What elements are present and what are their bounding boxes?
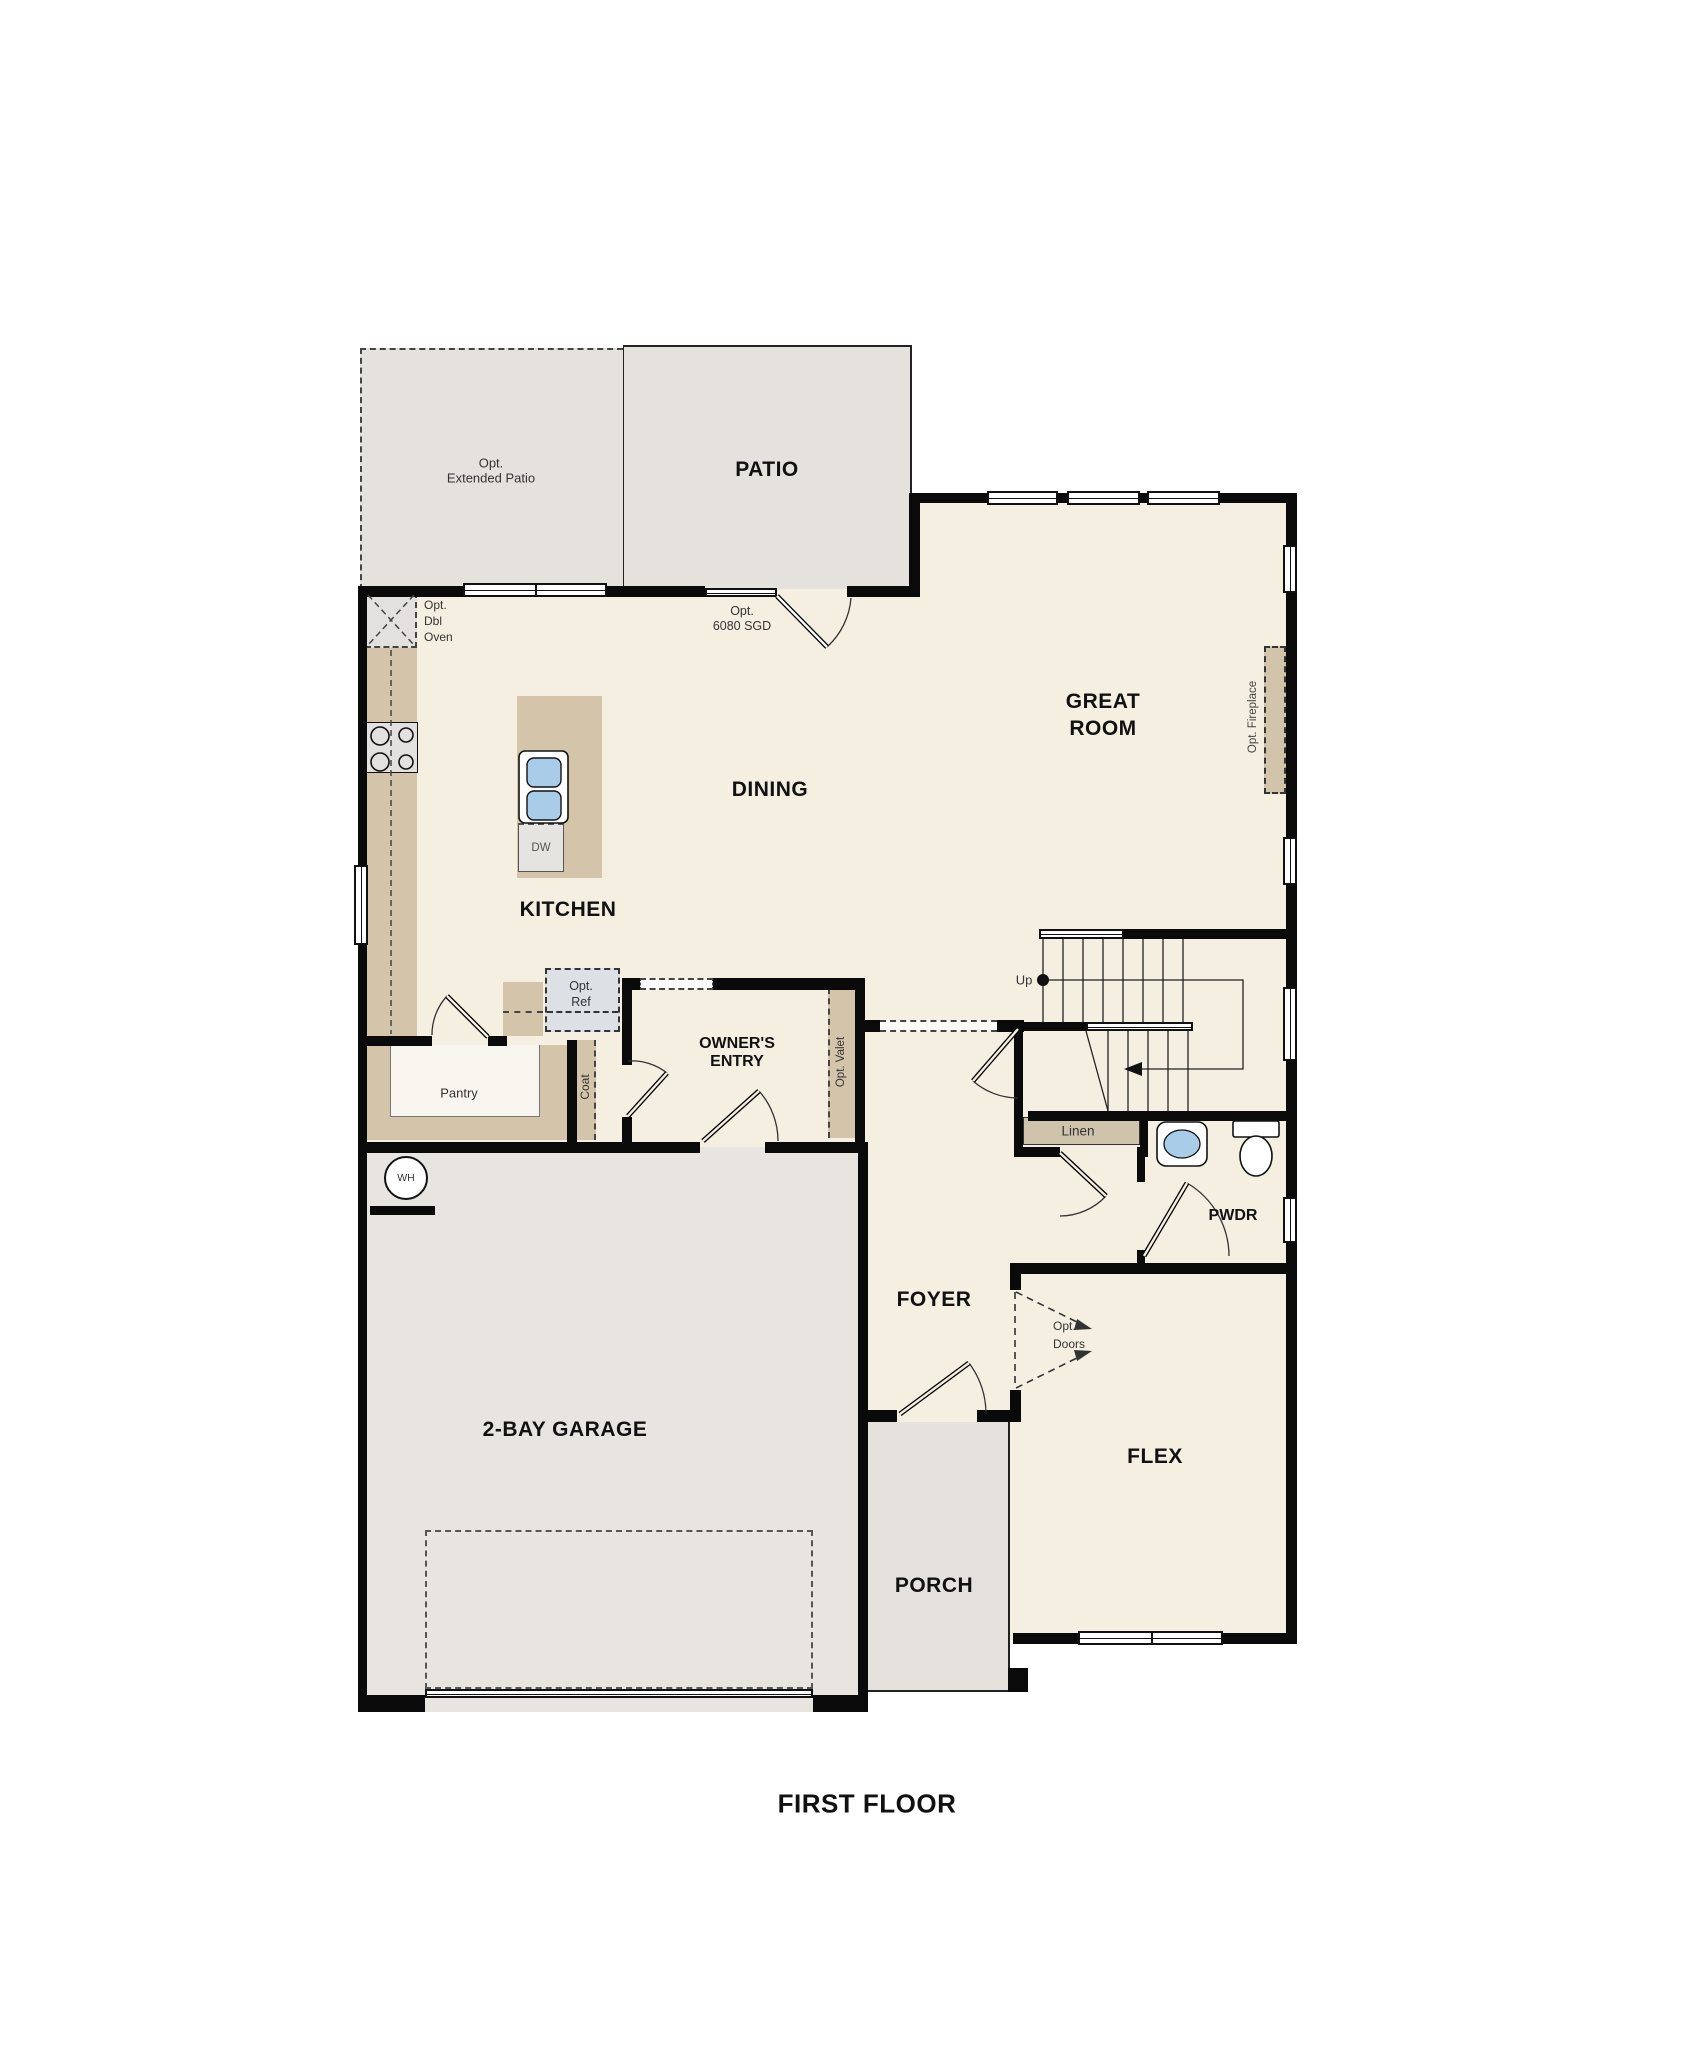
coat-label: Coat [578, 1074, 592, 1099]
cooktop-burners [371, 727, 413, 771]
stair-arrow [1124, 1062, 1142, 1076]
owners-entry-label-line2: ENTRY [710, 1053, 764, 1071]
pantry-door [432, 996, 488, 1037]
fireplace-label: Opt. Fireplace [1247, 681, 1259, 753]
pwdr-label: PWDR [1209, 1207, 1258, 1225]
owners-entry-label-line1: OWNER'S [699, 1035, 775, 1053]
dishwasher-label: DW [531, 842, 550, 854]
plan-title: FIRST FLOOR [778, 1789, 957, 1820]
porch-label: PORCH [895, 1574, 973, 1598]
great-room-label-line1: GREAT [1066, 690, 1140, 714]
staircase [1043, 939, 1243, 1111]
fridge-label-line1: Opt. [569, 979, 593, 993]
flex-label: FLEX [1127, 1445, 1183, 1469]
oven-hatch [368, 595, 414, 1034]
ext-patio-label-line2: Extended Patio [447, 471, 535, 486]
valet-label: Opt. Valet [835, 1037, 847, 1087]
sgd-label-line1: Opt. [730, 604, 754, 618]
opt-door-arrow [1074, 1319, 1092, 1330]
up-label: Up [1016, 973, 1033, 988]
stair-handrail [1048, 980, 1243, 1069]
oven-label-line3: Oven [424, 630, 453, 644]
floor-plan: WH [0, 0, 1695, 2071]
stair-direction [1037, 974, 1142, 1076]
fridge-label-line2: Ref [571, 995, 590, 1009]
foyer-label: FOYER [897, 1288, 972, 1312]
sink-basin [527, 791, 561, 820]
powder-sink [1157, 1122, 1207, 1166]
patio-label: PATIO [735, 458, 799, 482]
kitchen-label: KITCHEN [520, 898, 617, 922]
front-door [900, 1363, 986, 1414]
oven-label-line1: Opt. [424, 598, 447, 612]
toilet [1233, 1121, 1279, 1176]
linen-label: Linen [1061, 1124, 1094, 1139]
hall-door [1060, 1153, 1106, 1216]
ext-patio-label-line1: Opt. [479, 456, 504, 471]
owners-entry-side-door [628, 1061, 667, 1116]
opt-doors-label-line2: Doors [1053, 1337, 1085, 1351]
garage-label: 2-BAY GARAGE [483, 1418, 648, 1442]
opt-doors-label-line1: Opt. [1053, 1319, 1076, 1333]
oven-label-line2: Dbl [424, 614, 442, 628]
understair-closet-door [973, 1029, 1018, 1098]
dining-label: DINING [732, 778, 809, 802]
garage-entry-door [703, 1091, 778, 1141]
great-room-label-line2: ROOM [1069, 717, 1136, 741]
sliding-glass-door-swing [777, 596, 851, 647]
linework-layer [0, 0, 1695, 2071]
opt-door-arrow [1074, 1350, 1092, 1361]
island-sink [519, 751, 568, 823]
sgd-label-line2: 6080 SGD [713, 619, 771, 633]
sink-basin [527, 758, 561, 787]
pantry-label: Pantry [440, 1086, 478, 1101]
up-start-dot [1037, 974, 1049, 986]
